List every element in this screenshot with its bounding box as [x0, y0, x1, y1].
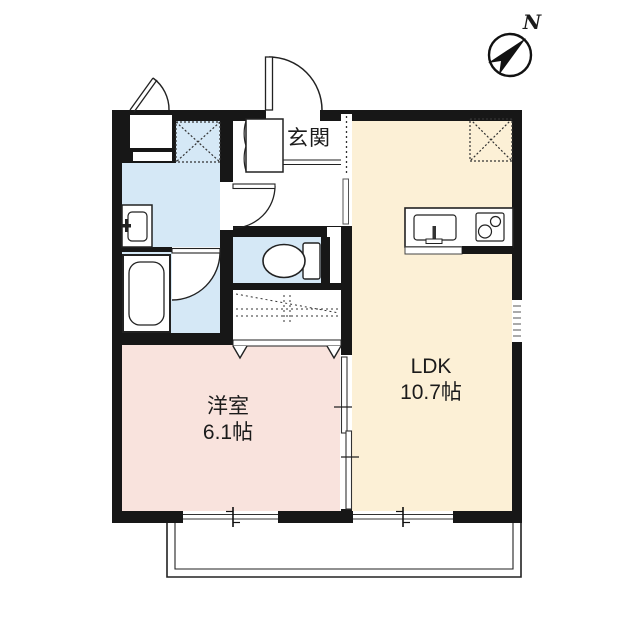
outdoor-storage-door — [130, 78, 169, 112]
entrance-label-text: 玄関 — [276, 126, 342, 152]
western-room-label: 洋室 6.1帖 — [173, 394, 283, 446]
wall-toilet-bottom — [220, 283, 341, 290]
washroom-door-gap — [220, 182, 233, 230]
ldk-size: 10.7帖 — [376, 380, 486, 406]
floor-plan-graphics — [0, 0, 640, 639]
wall-west-top — [112, 333, 233, 345]
louver-window — [512, 300, 522, 342]
floor-plan: 玄関 LDK 10.7帖 洋室 6.1帖 N — [0, 0, 640, 639]
western-room-size: 6.1帖 — [173, 420, 283, 446]
storage-opening — [130, 115, 172, 148]
wall-toilet-right — [321, 237, 330, 283]
entrance-label: 玄関 — [276, 126, 342, 152]
ldk-name: LDK — [376, 354, 486, 380]
washbasin — [122, 205, 152, 247]
entrance-swing-door — [266, 57, 323, 110]
storage-vent — [133, 152, 172, 161]
ldk-floor — [352, 121, 512, 511]
western-room-name: 洋室 — [173, 394, 283, 420]
closet-floor — [233, 290, 341, 340]
toilet-door-gap — [327, 227, 341, 237]
bathtub — [123, 255, 170, 332]
pipe-space — [330, 237, 341, 283]
north-compass-icon — [488, 34, 531, 76]
compass-north-text: N — [520, 10, 544, 35]
balcony — [167, 523, 521, 577]
ldk-label: LDK 10.7帖 — [376, 354, 486, 406]
kitchen-counter — [405, 208, 513, 254]
toilet-bowl — [263, 243, 320, 279]
compass-north-label: N — [520, 10, 544, 35]
wall-toilet-top — [233, 226, 341, 237]
